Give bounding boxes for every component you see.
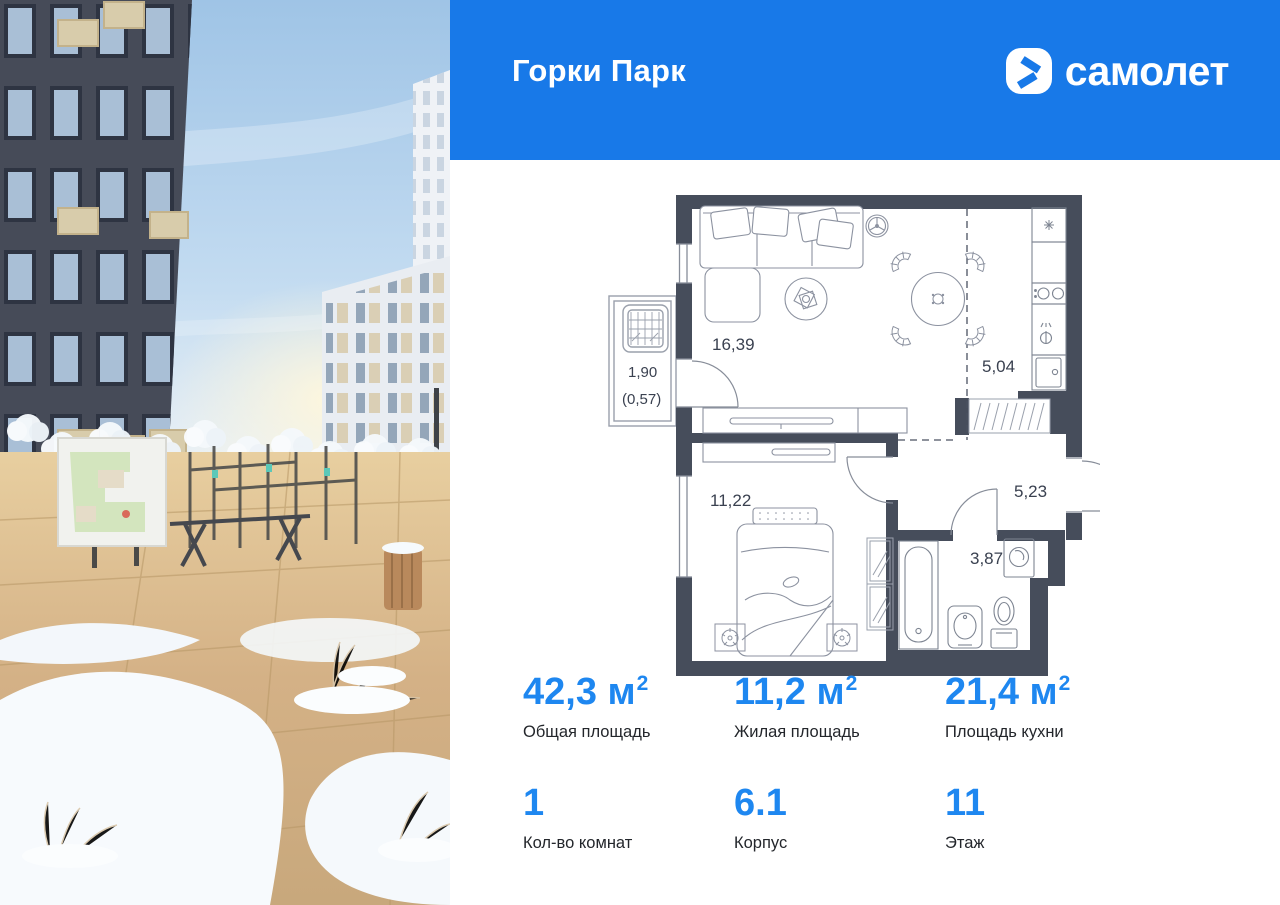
stat-living-area: 11,2 м2 Жилая площадь: [734, 670, 860, 742]
stat-label: Корпус: [734, 833, 787, 853]
bathtub: [899, 541, 938, 649]
wooden-bin: [382, 542, 424, 610]
stat-label: Этаж: [945, 833, 985, 853]
bathroom-sink: [948, 606, 982, 648]
label-living-area: 16,39: [712, 335, 755, 354]
stat-label: Общая площадь: [523, 722, 650, 742]
label-kitchen-area: 5,04: [982, 357, 1015, 376]
project-title: Горки Парк: [512, 53, 686, 89]
stat-label: Площадь кухни: [945, 722, 1070, 742]
stat-label: Кол-во комнат: [523, 833, 632, 853]
brand-name: самолет: [1065, 48, 1229, 95]
kitchen-units: [1032, 208, 1066, 390]
hall-wardrobe: [969, 399, 1050, 433]
floor-plan: 16,39 5,04 1,90 (0,57) 11,22 5,23 3,87: [600, 185, 1100, 685]
header: Горки Парк самолет: [450, 0, 1280, 160]
label-bedroom-area: 11,22: [710, 491, 751, 510]
stat-floor: 11 Этаж: [945, 781, 985, 853]
stat-kitchen-area: 21,4 м2 Площадь кухни: [945, 670, 1070, 742]
toilet: [991, 597, 1017, 648]
label-hallway-area: 5,23: [1014, 482, 1047, 501]
samolet-logo-icon: [1006, 48, 1052, 94]
project-photo: [0, 0, 450, 905]
washing-machine: [1004, 539, 1034, 577]
label-balcony-area: (0,57): [622, 391, 661, 408]
dining-table: [887, 248, 989, 350]
bed: [737, 508, 833, 656]
sofa: [700, 206, 863, 322]
label-balcony-length: 1,90: [628, 364, 657, 381]
stat-total-area: 42,3 м2 Общая площадь: [523, 670, 650, 742]
flat-card: { "header": { "title": "Горки Парк", "br…: [0, 0, 1280, 905]
rug-with-plant: [785, 278, 827, 320]
stat-label: Жилая площадь: [734, 722, 860, 742]
ceiling-fan-icon: [866, 215, 888, 237]
stat-rooms: 1 Кол-во комнат: [523, 781, 632, 853]
label-bathroom-area: 3,87: [970, 549, 1003, 568]
stat-building: 6.1 Корпус: [734, 781, 787, 853]
brand-logo: самолет: [1006, 48, 1229, 95]
